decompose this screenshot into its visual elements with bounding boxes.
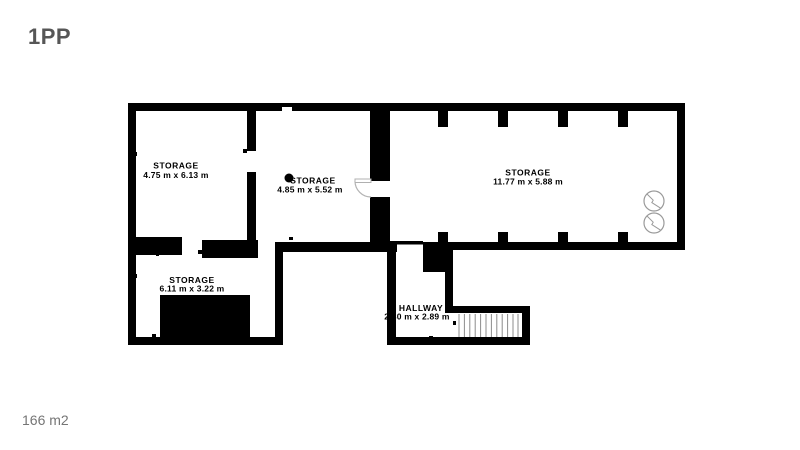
door-swing-arc [355, 181, 371, 197]
wall-tick [198, 250, 202, 254]
column-stub [498, 232, 508, 242]
column-stub [498, 111, 508, 127]
room-dims: 11.77 m x 5.88 m [493, 177, 563, 187]
wall-tick [453, 321, 456, 325]
column-stub [558, 232, 568, 242]
wall-tick [289, 237, 293, 240]
column-stub [438, 232, 448, 242]
wall-left [128, 103, 136, 345]
room-dims: 2.80 m x 2.89 m [384, 312, 450, 322]
wall-divider-left-upper [247, 111, 256, 151]
wall-bottomleft-right [275, 242, 283, 345]
wall-tick [519, 246, 523, 249]
floorplan-drawing: STORAGE 4.75 m x 6.13 m STORAGE 4.85 m x… [0, 0, 800, 450]
room-dims: 4.75 m x 6.13 m [143, 170, 209, 180]
solid-feature-block [160, 295, 250, 340]
room-dims: 4.85 m x 5.52 m [277, 185, 343, 195]
floorplan-page: 1PP [0, 0, 800, 450]
stair-treads [459, 314, 518, 337]
fan-symbols [644, 191, 664, 233]
wall-hallway-bottom [387, 337, 530, 345]
wall-tick [134, 152, 137, 156]
wall-tick [309, 108, 313, 111]
wall-tick [198, 108, 202, 111]
total-area-label: 166 m2 [22, 412, 69, 428]
wall-right [677, 103, 685, 250]
fan-blade-line [647, 216, 661, 230]
wall-tick [134, 274, 137, 278]
staircase [459, 314, 518, 337]
fan-icon [644, 191, 664, 211]
wall-tick [429, 336, 433, 339]
room-label-storage-left: STORAGE 4.75 m x 6.13 m [143, 161, 209, 181]
fan-icon [644, 213, 664, 233]
wall-divider-right-lower [370, 197, 390, 242]
column-stub [618, 111, 628, 127]
wall-divider-left-lower [247, 172, 256, 242]
wall-band-b [202, 240, 258, 258]
door-swing [355, 179, 371, 197]
room-label-storage-right: STORAGE 11.77 m x 5.88 m [493, 168, 563, 187]
wall-top [128, 103, 685, 111]
fan-blade-line [647, 194, 661, 208]
wall-rightroom-bottom [450, 242, 685, 250]
wall-band-c [275, 242, 397, 252]
door-leaf [355, 179, 371, 183]
room-name: STORAGE [153, 161, 198, 171]
room-dims: 6.11 m x 3.22 m [160, 284, 225, 294]
column-stub [558, 111, 568, 127]
wall-band-a [128, 237, 182, 255]
wall-hallway-threshold [396, 241, 423, 245]
wall-tick [152, 334, 156, 337]
wall-tick [243, 149, 247, 153]
wall-tick [156, 253, 159, 256]
wall-hallway-left [387, 241, 396, 345]
room-label-storage-bottom: STORAGE 6.11 m x 3.22 m [160, 275, 225, 294]
window-notch [282, 107, 292, 111]
wall-hallway-right [445, 265, 453, 313]
wall-stairs-top [445, 306, 530, 313]
column-stub [618, 232, 628, 242]
column-stub [438, 111, 448, 127]
wall-divider-right-upper [370, 111, 390, 181]
